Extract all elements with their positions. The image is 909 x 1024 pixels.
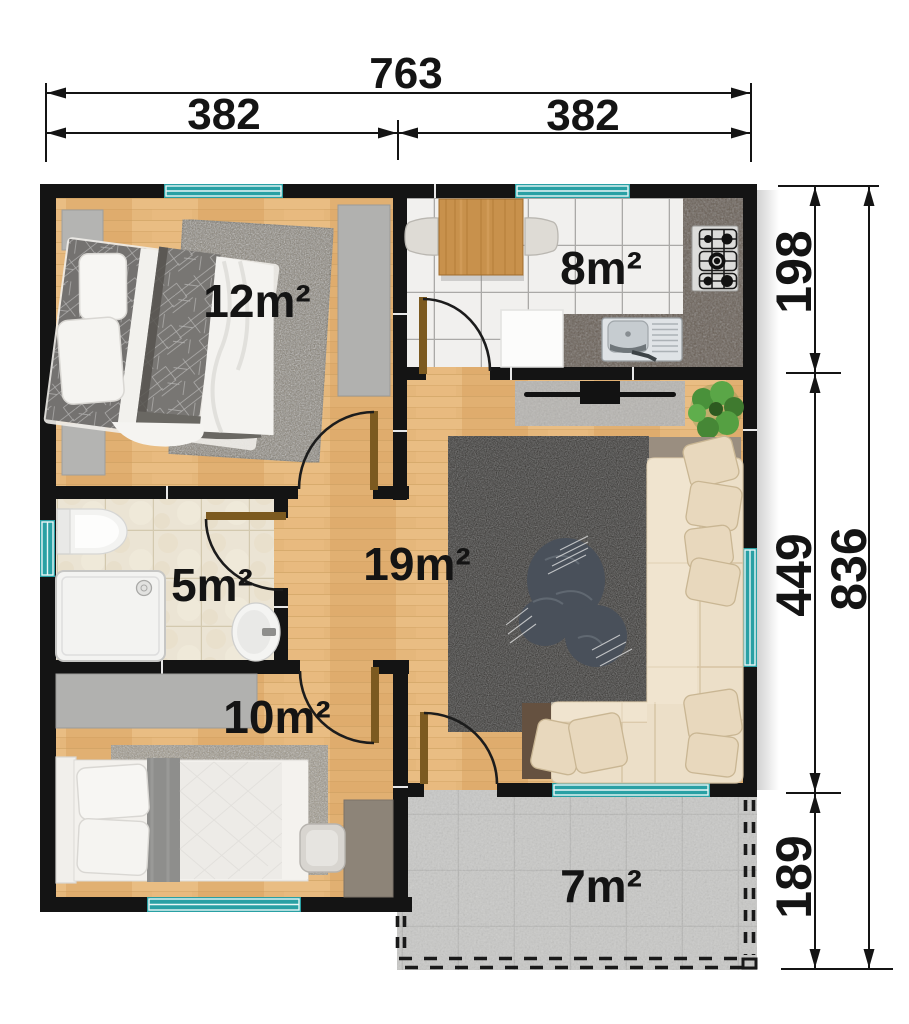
svg-text:189: 189 bbox=[766, 835, 822, 918]
svg-text:382: 382 bbox=[546, 91, 619, 140]
svg-text:12m²: 12m² bbox=[203, 275, 310, 327]
svg-text:8m²: 8m² bbox=[560, 242, 642, 294]
svg-text:382: 382 bbox=[187, 90, 260, 139]
svg-text:19m²: 19m² bbox=[363, 538, 470, 590]
svg-text:10m²: 10m² bbox=[223, 691, 330, 743]
svg-text:449: 449 bbox=[766, 533, 822, 616]
svg-text:5m²: 5m² bbox=[171, 559, 253, 611]
svg-text:198: 198 bbox=[766, 230, 822, 313]
svg-text:7m²: 7m² bbox=[560, 860, 642, 912]
svg-text:836: 836 bbox=[821, 527, 877, 610]
svg-text:763: 763 bbox=[369, 49, 442, 98]
